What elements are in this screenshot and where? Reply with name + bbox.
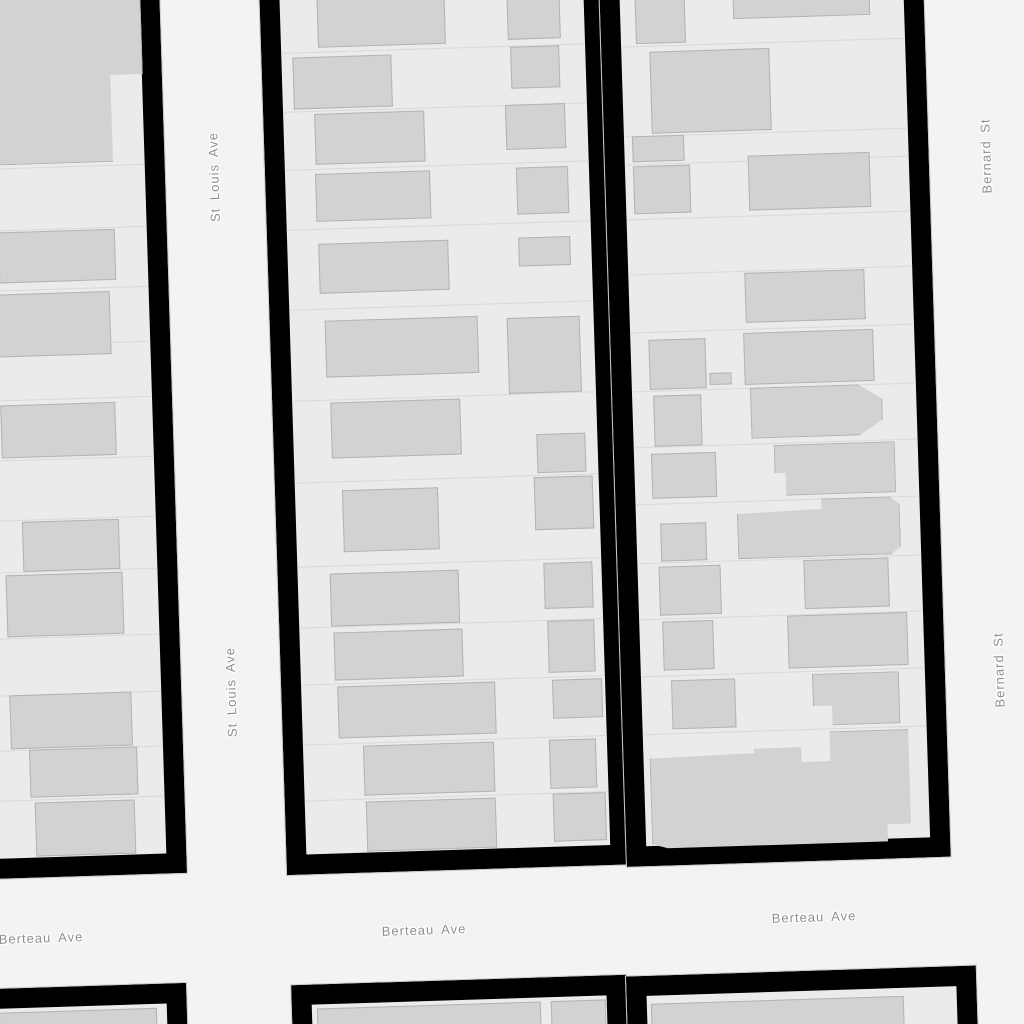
building-footprint (516, 166, 569, 215)
building-footprint (744, 269, 866, 323)
building-footprint (366, 798, 498, 852)
city-block-middle (257, 0, 631, 875)
building-footprint (506, 0, 561, 40)
building-footprint (803, 557, 889, 609)
building-footprint (0, 402, 117, 459)
city-block-bottom-right (626, 966, 980, 1024)
building-footprint (547, 619, 596, 672)
building-footprint (709, 372, 731, 385)
street-label-berteau-ave-right: Berteau Ave (771, 908, 856, 926)
building-footprint (651, 996, 906, 1024)
building-footprint (552, 678, 603, 719)
building-footprint (330, 398, 462, 458)
parcel-line (289, 300, 593, 311)
building-footprint (0, 229, 116, 284)
building-footprint (507, 316, 582, 394)
building-footprint (9, 692, 133, 750)
building-footprint (510, 45, 560, 89)
building-footprint (35, 799, 137, 856)
building-footprint (750, 384, 884, 439)
building-footprint (549, 738, 598, 788)
building-footprint (6, 572, 125, 638)
building-footprint (0, 1008, 159, 1024)
street-label-bernard-st-upper: Bernard St (977, 118, 994, 194)
building-footprint (22, 519, 121, 572)
building-footprint (330, 570, 461, 627)
building-footprint (633, 165, 691, 215)
building-footprint (649, 48, 772, 134)
building-footprint (318, 240, 450, 294)
building-footprint (536, 433, 586, 474)
building-footprint (29, 746, 138, 797)
building-footprint (662, 620, 715, 671)
building-footprint (342, 487, 440, 552)
building-footprint (314, 110, 426, 164)
building-footprint (551, 999, 608, 1024)
street-label-st-louis-ave-upper: St Louis Ave (205, 132, 223, 222)
building-footprint (774, 441, 897, 496)
building-footprint (660, 522, 707, 561)
building-footprint (812, 671, 901, 726)
building-footprint (316, 0, 446, 48)
building-footprint (325, 316, 480, 378)
building-footprint (649, 729, 914, 851)
building-footprint (671, 678, 737, 729)
building-footprint (317, 1001, 543, 1024)
building-footprint (518, 236, 571, 267)
street-label-berteau-ave-center: Berteau Ave (381, 921, 466, 939)
building-footprint (292, 54, 393, 109)
street-label-bernard-st-lower: Bernard St (990, 632, 1007, 708)
building-footprint (333, 629, 463, 681)
map-canvas[interactable]: St Louis AveSt Louis AveBernard StBernar… (0, 0, 1024, 1024)
building-footprint (505, 103, 566, 150)
building-footprint (337, 682, 497, 739)
building-footprint (634, 0, 686, 44)
building-footprint (736, 496, 901, 559)
building-footprint (0, 291, 112, 358)
city-block-bottom-middle (291, 975, 630, 1024)
city-block-left (0, 0, 187, 883)
building-footprint (743, 329, 875, 385)
building-footprint (0, 0, 146, 166)
building-footprint (315, 170, 431, 222)
building-footprint (658, 565, 722, 616)
parcel-line (0, 164, 145, 174)
building-footprint (648, 338, 707, 390)
building-footprint (543, 561, 593, 609)
building-footprint (732, 0, 870, 19)
building-footprint (632, 135, 685, 163)
building-footprint (748, 152, 872, 211)
building-footprint (553, 792, 607, 842)
street-label-st-louis-ave-lower: St Louis Ave (222, 647, 240, 737)
building-footprint (653, 394, 703, 446)
city-block-bottom-left (0, 983, 190, 1024)
building-footprint (651, 452, 717, 499)
building-footprint (787, 612, 909, 669)
building-footprint (363, 742, 496, 796)
street-label-berteau-ave-left: Berteau Ave (0, 929, 84, 947)
building-footprint (534, 475, 595, 530)
parcel-line (287, 220, 591, 231)
city-block-right (597, 0, 950, 867)
